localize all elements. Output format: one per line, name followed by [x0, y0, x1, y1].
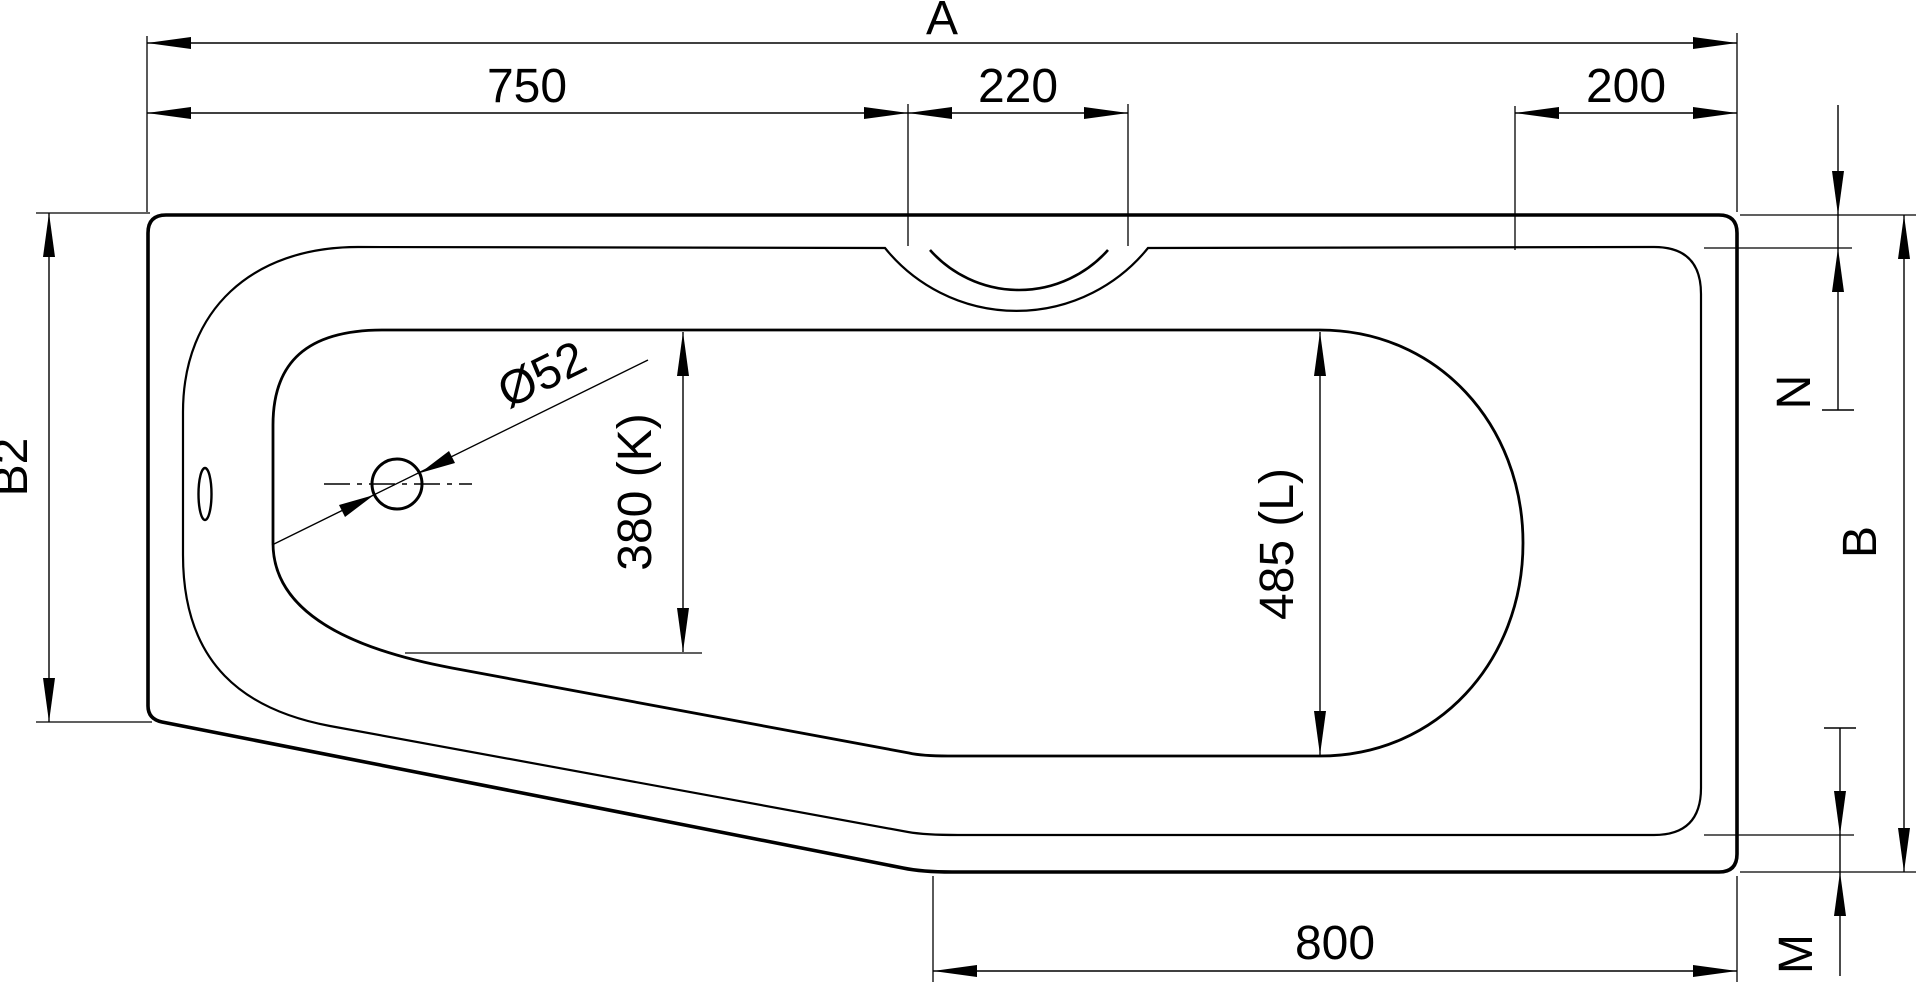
drawing-canvas: Ø52 A 750 220 200 B2 N B M — [0, 0, 1920, 985]
dim-B2-label: B2 — [0, 438, 38, 497]
drain-leader-arrow-lower — [339, 495, 374, 517]
dim-380-arrow-top — [677, 332, 689, 376]
dim-N-label: N — [1768, 375, 1821, 410]
overflow-slot — [199, 468, 212, 520]
dim-800-arrow-left — [933, 965, 977, 977]
dim-B2-arrow-bottom — [43, 678, 55, 722]
dim-B2-arrow-top — [43, 213, 55, 257]
dim-750-arrow-right — [864, 107, 908, 119]
tub-outer-outline — [148, 215, 1737, 872]
dim-200-arrow-left — [1515, 107, 1559, 119]
dim-750-label: 750 — [487, 60, 567, 113]
rim-inner-outline — [183, 247, 1701, 835]
grip-recess-inner-arc — [930, 250, 1108, 290]
drain-diameter-label: Ø52 — [490, 331, 595, 419]
dim-N-arrow-down — [1832, 171, 1844, 215]
dim-B-arrow-top — [1898, 215, 1910, 259]
dim-A-arrow-right — [1693, 37, 1737, 49]
dim-220-label: 220 — [978, 60, 1058, 113]
dim-A-label: A — [926, 0, 958, 45]
dim-800-label: 800 — [1295, 917, 1375, 970]
dim-485-label: 485 (L) — [1251, 468, 1304, 620]
dim-485-arrow-bottom — [1314, 711, 1326, 755]
dim-200-arrow-right — [1693, 107, 1737, 119]
dim-800-arrow-right — [1693, 965, 1737, 977]
dim-N-arrow-up — [1832, 248, 1844, 292]
dim-M-arrow-up — [1834, 872, 1846, 916]
bathtub-technical-drawing: Ø52 A 750 220 200 B2 N B M — [0, 0, 1920, 985]
dim-M-label: M — [1770, 934, 1823, 974]
drain-leader-arrow-upper — [420, 451, 455, 473]
dim-380-arrow-bottom — [677, 608, 689, 652]
dim-M-arrow-down — [1834, 791, 1846, 835]
basin-opening-outline — [273, 330, 1523, 756]
dim-380-label: 380 (K) — [609, 413, 662, 570]
drain-diameter-leader-line — [272, 360, 648, 545]
dim-B-arrow-bottom — [1898, 828, 1910, 872]
dim-485-arrow-top — [1314, 332, 1326, 376]
dim-200-label: 200 — [1586, 60, 1666, 113]
dim-A-arrow-left — [147, 37, 191, 49]
dim-750-arrow-left — [147, 107, 191, 119]
dim-220-arrow-right — [1084, 107, 1128, 119]
dim-B-label: B — [1834, 526, 1887, 558]
dim-220-arrow-left — [908, 107, 952, 119]
